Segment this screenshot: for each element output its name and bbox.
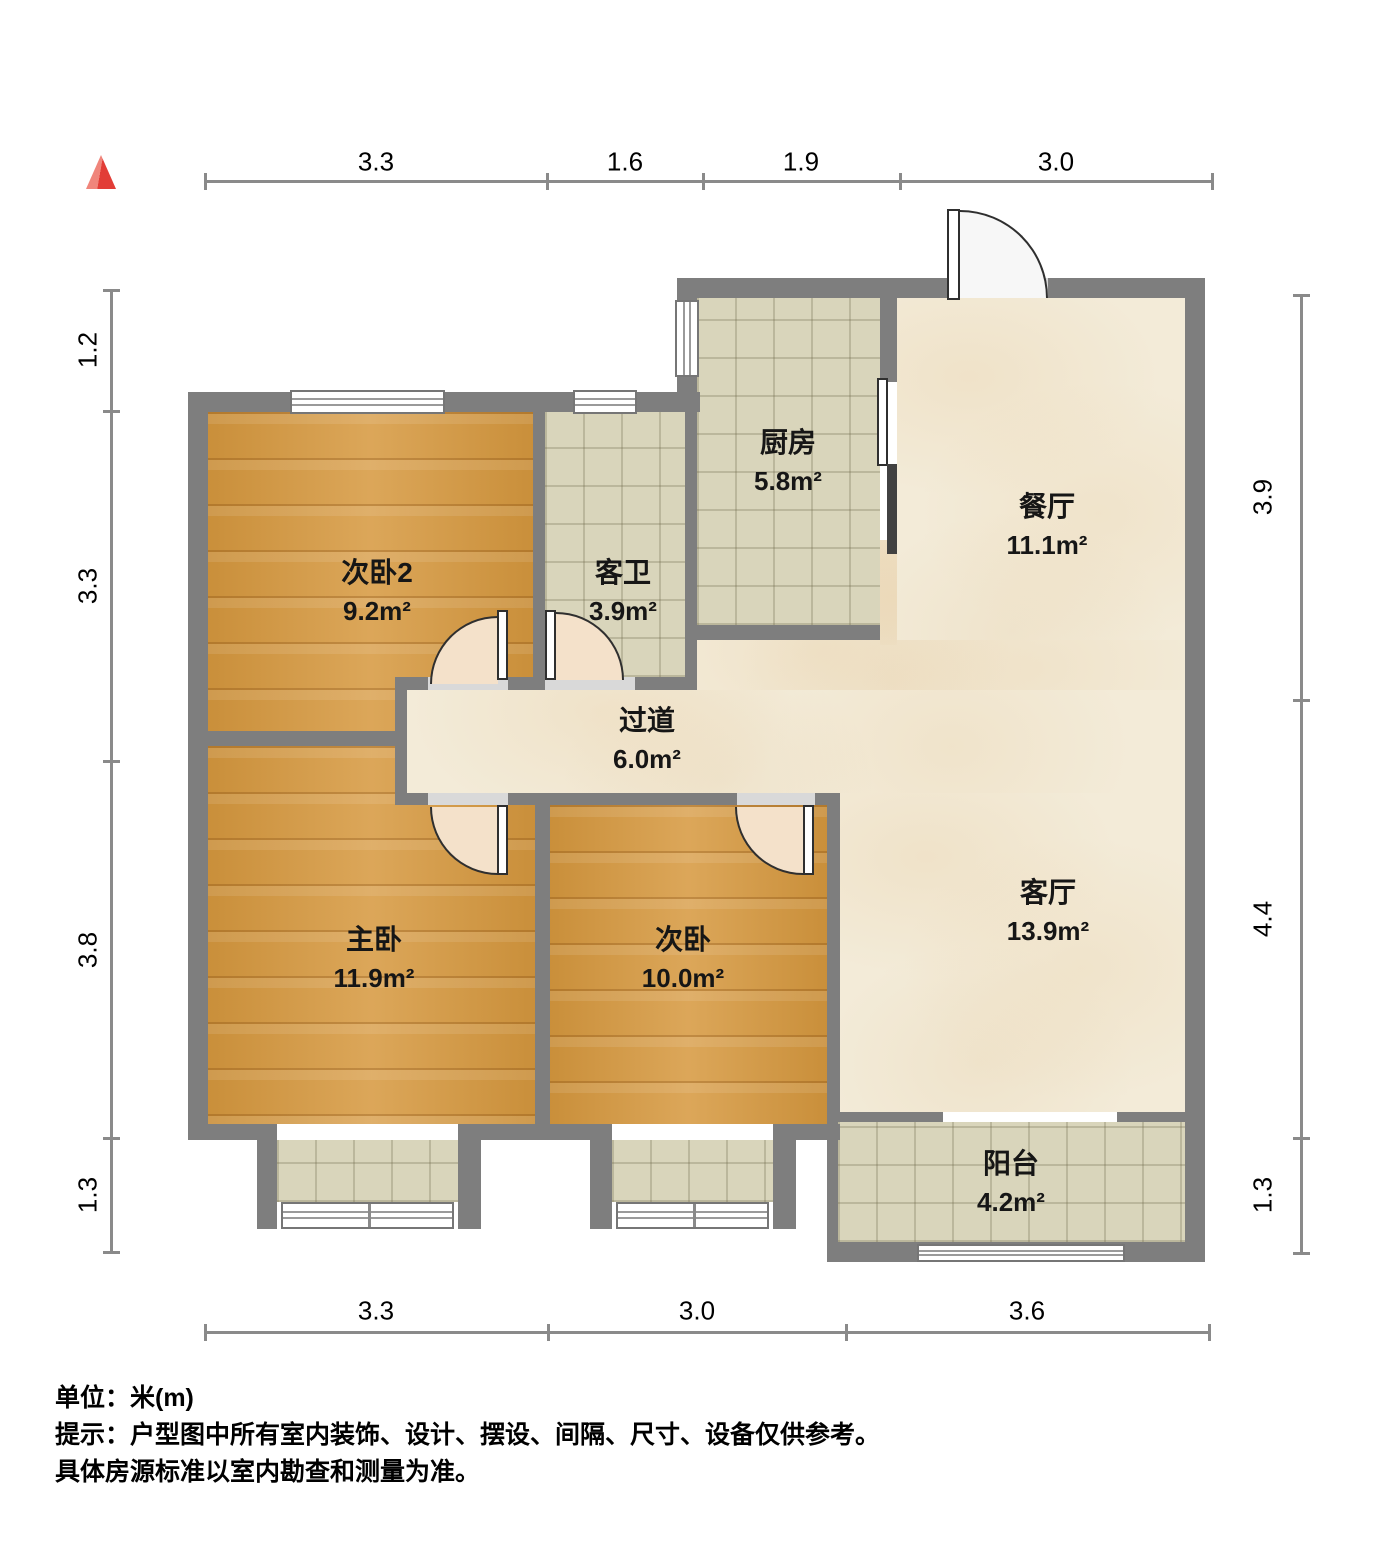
master-bedroom-door-leaf (497, 805, 508, 875)
label-dining-room: 餐厅 11.1m² (1007, 488, 1088, 564)
dim-tick (204, 1324, 207, 1341)
dim-line-bottom (205, 1331, 1211, 1334)
dim-tick (899, 173, 902, 190)
dim-line-left (110, 290, 113, 1253)
window-bay-bedroom (616, 1202, 769, 1229)
dim-left-2: 3.3 (73, 568, 104, 604)
room-name: 过道 (613, 702, 681, 740)
room-name: 厨房 (754, 424, 822, 462)
bedroom-door-leaf (803, 805, 814, 875)
wall-bathroom-kitchen-divider (685, 412, 697, 677)
wall-hallway-top-c (635, 677, 697, 690)
wall-bedroom2-master-divider (208, 731, 395, 746)
wall-bay1-left (257, 1124, 277, 1229)
dim-top-2: 1.6 (607, 147, 643, 178)
room-area: 5.8m² (754, 462, 822, 500)
window-mullion (693, 1204, 696, 1227)
dim-tick (1293, 699, 1310, 702)
dim-tick (1293, 1252, 1310, 1255)
wall-hallway-bottom-a (395, 793, 428, 805)
wall-balcony-top-left (840, 1112, 943, 1122)
dim-bottom-1: 3.3 (358, 1296, 394, 1327)
room-area: 13.9m² (1007, 912, 1089, 950)
wall-bottom-left (188, 1124, 257, 1140)
dim-tick (1293, 294, 1310, 297)
kitchen-sliding-door-panel-dark (887, 464, 897, 554)
room-name: 客卫 (589, 554, 657, 592)
wall-top-right (677, 278, 1205, 298)
wall-balcony-left (827, 1122, 838, 1262)
room-name: 餐厅 (1007, 488, 1088, 526)
wall-master-bedroom-divider (535, 805, 550, 1124)
entry-door-leaf (947, 209, 960, 300)
dim-tick (204, 173, 207, 190)
label-balcony: 阳台 4.2m² (977, 1145, 1045, 1221)
wall-hallway-top-b (508, 677, 545, 690)
floor-dining-extension (697, 640, 1185, 690)
wall-kitchen-dining-divider (880, 298, 897, 382)
wall-bay2-right (773, 1124, 796, 1229)
legend-tip-line1: 提示：户型图中所有室内装饰、设计、摆设、间隔、尺寸、设备仅供参考。 (55, 1417, 880, 1454)
floor-bay-window-bedroom (612, 1140, 773, 1202)
dim-left-3: 3.8 (73, 932, 104, 968)
legend-notes: 单位：米(m) 提示：户型图中所有室内装饰、设计、摆设、间隔、尺寸、设备仅供参考… (55, 1380, 880, 1491)
wall-bedroom2-bathroom-divider (533, 412, 545, 677)
dim-top-4: 3.0 (1038, 147, 1074, 178)
north-arrow-icon (86, 155, 116, 189)
wall-bay1-right (458, 1124, 481, 1229)
wall-bay2-left (590, 1124, 612, 1229)
wall-kitchen-bottom (697, 625, 880, 640)
dim-left-1: 1.2 (73, 332, 104, 368)
dim-top-3: 1.9 (783, 147, 819, 178)
room-name: 主卧 (334, 921, 415, 959)
room-name: 次卧 (642, 921, 724, 959)
label-hallway: 过道 6.0m² (613, 702, 681, 778)
window-balcony (917, 1244, 1125, 1262)
dim-tick (103, 410, 120, 413)
legend-unit: 单位：米(m) (55, 1380, 880, 1417)
room-area: 3.9m² (589, 592, 657, 630)
window-mullion (368, 1204, 371, 1227)
wall-hallway-bottom-b (508, 793, 737, 805)
threshold-master-bedroom (428, 793, 508, 805)
guest-bathroom-door-leaf (545, 610, 556, 680)
dim-line-right (1300, 295, 1303, 1254)
wall-hallway-top-a (407, 677, 428, 690)
label-bedroom: 次卧 10.0m² (642, 921, 724, 997)
room-area: 9.2m² (341, 592, 413, 630)
window-kitchen (675, 300, 699, 377)
wall-right (1185, 278, 1205, 1262)
wall-living-left (827, 793, 840, 1122)
room-name: 客厅 (1007, 874, 1089, 912)
dim-bottom-2: 3.0 (679, 1296, 715, 1327)
wall-bottom-mid (481, 1124, 590, 1140)
dim-right-2: 4.4 (1248, 901, 1279, 937)
dim-right-3: 1.3 (1248, 1177, 1279, 1213)
dim-tick (103, 289, 120, 292)
room-name: 阳台 (977, 1145, 1045, 1183)
room-name: 次卧2 (341, 554, 413, 592)
label-bedroom2: 次卧2 9.2m² (341, 554, 413, 630)
dim-tick (546, 173, 549, 190)
label-living-room: 客厅 13.9m² (1007, 874, 1089, 950)
window-bay-master (281, 1202, 454, 1229)
dim-tick (103, 1251, 120, 1254)
wall-left (188, 392, 208, 1140)
bedroom2-door-leaf (497, 610, 508, 680)
dim-tick (1293, 1137, 1310, 1140)
entry-door-swing (960, 210, 1048, 298)
window-guest-bathroom (573, 390, 637, 414)
dim-tick (1208, 1324, 1211, 1341)
dim-tick (547, 1324, 550, 1341)
wall-balcony-top-right (1117, 1112, 1185, 1122)
floor-bay-window-master (277, 1140, 458, 1202)
dim-right-1: 3.9 (1248, 479, 1279, 515)
floor-living-room (840, 793, 1185, 1112)
label-guest-bathroom: 客卫 3.9m² (589, 554, 657, 630)
kitchen-sliding-door-panel-white (877, 378, 888, 466)
room-area: 11.1m² (1007, 526, 1088, 564)
room-area: 11.9m² (334, 959, 415, 997)
dim-tick (103, 760, 120, 763)
dim-bottom-3: 3.6 (1009, 1296, 1045, 1327)
room-area: 6.0m² (613, 740, 681, 778)
dim-tick (1211, 173, 1214, 190)
wall-hallway-left (395, 677, 407, 805)
dim-left-4: 1.3 (73, 1177, 104, 1213)
window-bedroom2 (290, 390, 445, 414)
dim-tick (845, 1324, 848, 1341)
label-kitchen: 厨房 5.8m² (754, 424, 822, 500)
label-master-bedroom: 主卧 11.9m² (334, 921, 415, 997)
dim-tick (103, 1137, 120, 1140)
threshold-bedroom (737, 793, 815, 805)
room-area: 10.0m² (642, 959, 724, 997)
room-area: 4.2m² (977, 1183, 1045, 1221)
legend-tip-line2: 具体房源标准以室内勘查和测量为准。 (55, 1454, 880, 1491)
dim-top-1: 3.3 (358, 147, 394, 178)
dim-line-top (205, 180, 1214, 183)
floor-kitchen-doorway (880, 540, 897, 645)
floor-hallway (407, 690, 1185, 793)
dim-tick (702, 173, 705, 190)
floor-plan-page: 次卧2 9.2m² 客卫 3.9m² 厨房 5.8m² 餐厅 11.1m² 过道… (0, 0, 1398, 1543)
